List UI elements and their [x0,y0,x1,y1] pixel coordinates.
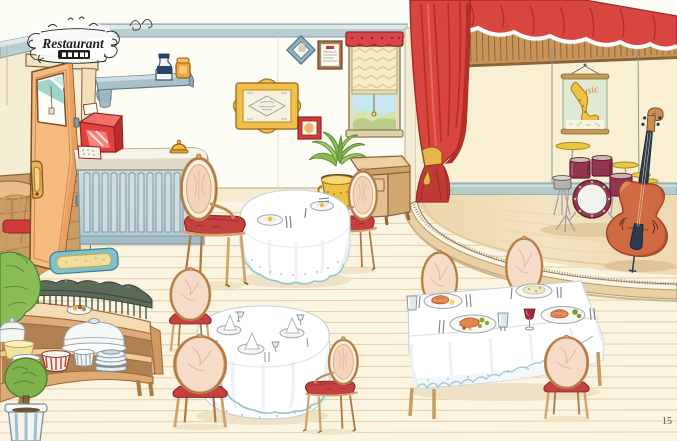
svg-text:15: 15 [662,416,672,427]
svg-text:Restaurant: Restaurant [41,36,105,51]
